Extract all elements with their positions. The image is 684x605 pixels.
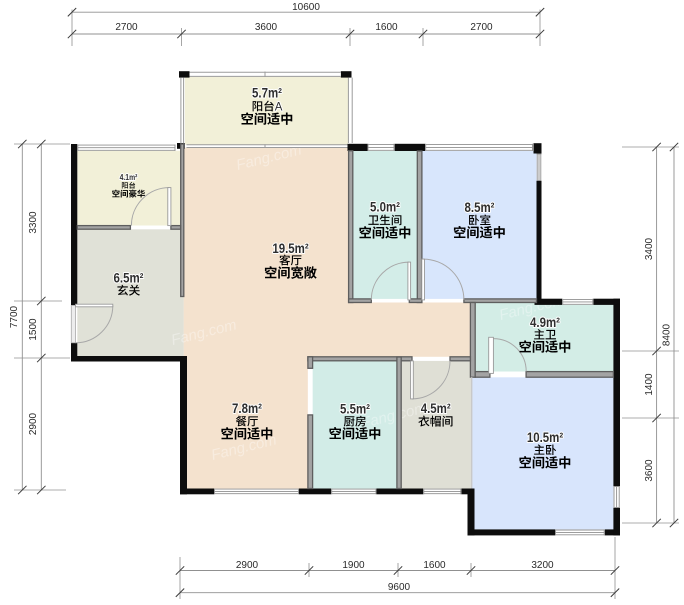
svg-text:19.5m²: 19.5m²: [272, 241, 308, 256]
svg-text:2700: 2700: [470, 22, 493, 33]
svg-text:1600: 1600: [423, 560, 446, 571]
svg-text:8.5m²: 8.5m²: [465, 200, 495, 215]
svg-text:1500: 1500: [28, 318, 39, 341]
svg-text:10.5m²: 10.5m²: [527, 430, 563, 445]
svg-text:4.5m²: 4.5m²: [421, 401, 451, 416]
svg-text:A: A: [275, 101, 283, 113]
svg-text:1900: 1900: [342, 560, 365, 571]
svg-text:7.8m²: 7.8m²: [232, 401, 262, 416]
svg-text:9600: 9600: [388, 582, 411, 593]
svg-text:3400: 3400: [644, 237, 655, 260]
svg-text:3300: 3300: [28, 211, 39, 234]
svg-text:2900: 2900: [236, 560, 259, 571]
svg-text:10600: 10600: [292, 2, 320, 13]
svg-text:5.5m²: 5.5m²: [340, 402, 370, 417]
svg-text:5.7m²: 5.7m²: [252, 86, 282, 101]
svg-text:8400: 8400: [662, 323, 673, 346]
svg-text:1600: 1600: [375, 22, 398, 33]
svg-text:4.1m²: 4.1m²: [120, 172, 138, 182]
svg-text:5.0m²: 5.0m²: [370, 200, 400, 215]
svg-text:3200: 3200: [531, 560, 554, 571]
svg-text:1400: 1400: [644, 373, 655, 396]
svg-text:4.9m²: 4.9m²: [530, 315, 560, 330]
svg-text:6.5m²: 6.5m²: [114, 270, 144, 285]
svg-text:7700: 7700: [9, 305, 20, 328]
svg-text:2900: 2900: [28, 412, 39, 435]
svg-text:3600: 3600: [644, 459, 655, 482]
svg-text:2700: 2700: [115, 22, 138, 33]
svg-text:3600: 3600: [255, 22, 278, 33]
